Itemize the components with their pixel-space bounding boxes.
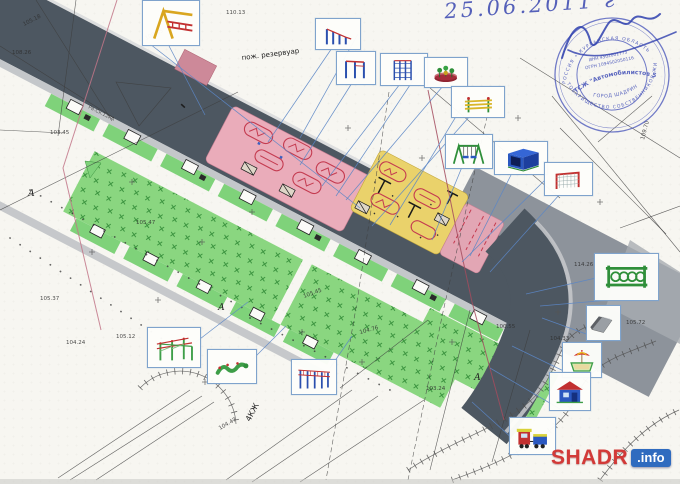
svg-text:108.26: 108.26 [12, 50, 32, 56]
svg-text:100.55: 100.55 [496, 324, 516, 330]
callout-football-goal [544, 162, 593, 196]
scan-edge [0, 479, 680, 484]
balance-posts-icon [317, 21, 358, 48]
svg-text:103.24: 103.24 [426, 386, 446, 392]
watermark-suffix-badge: .info [631, 449, 670, 467]
callout-pavilion [494, 141, 548, 175]
building-label: 4КЖ [244, 401, 261, 423]
callout-volleyball-net [291, 359, 337, 395]
callout-garden-fence [594, 253, 659, 301]
axis-letter-a2: А [217, 303, 225, 313]
callout-climbing-frame [380, 53, 428, 86]
svg-text:110.13: 110.13 [226, 10, 246, 16]
horizontal-bars-icon [338, 54, 374, 83]
callout-bench [451, 86, 505, 118]
svg-text:104.24: 104.24 [66, 340, 86, 346]
svg-text:105.72: 105.72 [626, 320, 645, 326]
watermark: SHADR .info [551, 446, 671, 470]
pergola-icon [150, 330, 199, 365]
callout-ramp [586, 305, 621, 341]
scanned-site-plan-page: пож. резервуар 4КЖ Ра.Сх.12РА А А А 105.… [0, 0, 680, 484]
fire-reservoir-label: пож. резервуар [241, 47, 300, 62]
watermark-text: SHADR [551, 446, 628, 470]
swing-set-icon [447, 137, 490, 167]
svg-text:105.47: 105.47 [136, 220, 156, 226]
bench-icon [454, 89, 503, 116]
climbing-frame-icon [382, 56, 425, 84]
svg-text:104.47: 104.47 [218, 417, 238, 432]
callout-swing-set [445, 134, 493, 169]
callout-carousel [424, 57, 468, 88]
svg-text:105.37: 105.37 [40, 296, 60, 302]
volleyball-net-icon [293, 362, 334, 393]
axis-letter-a3: А [473, 373, 481, 383]
svg-text:105.12: 105.12 [116, 334, 135, 340]
playhouse-icon [551, 375, 589, 408]
callout-balance-posts [315, 18, 361, 50]
ramp-icon [588, 308, 619, 339]
svg-text:114.26: 114.26 [574, 262, 594, 268]
toy-train-icon [511, 420, 553, 452]
callout-swing-ladder [142, 0, 200, 46]
carousel-icon [426, 59, 465, 85]
sandbox-umbrella-icon [564, 345, 600, 376]
garden-fence-icon [597, 256, 656, 297]
callout-toy-train [509, 417, 556, 455]
callout-horizontal-bars [336, 51, 376, 85]
swing-ladder-icon [145, 3, 198, 43]
callout-playhouse [549, 372, 591, 411]
pavilion-icon [497, 144, 546, 173]
football-goal-icon [546, 165, 590, 194]
signature-scribble [538, 2, 680, 76]
axis-letter-a1: А [27, 189, 35, 199]
svg-text:103.45: 103.45 [50, 130, 70, 136]
callout-caterpillar-bench [207, 349, 257, 384]
callout-pergola [147, 327, 201, 368]
caterpillar-icon [209, 352, 254, 382]
